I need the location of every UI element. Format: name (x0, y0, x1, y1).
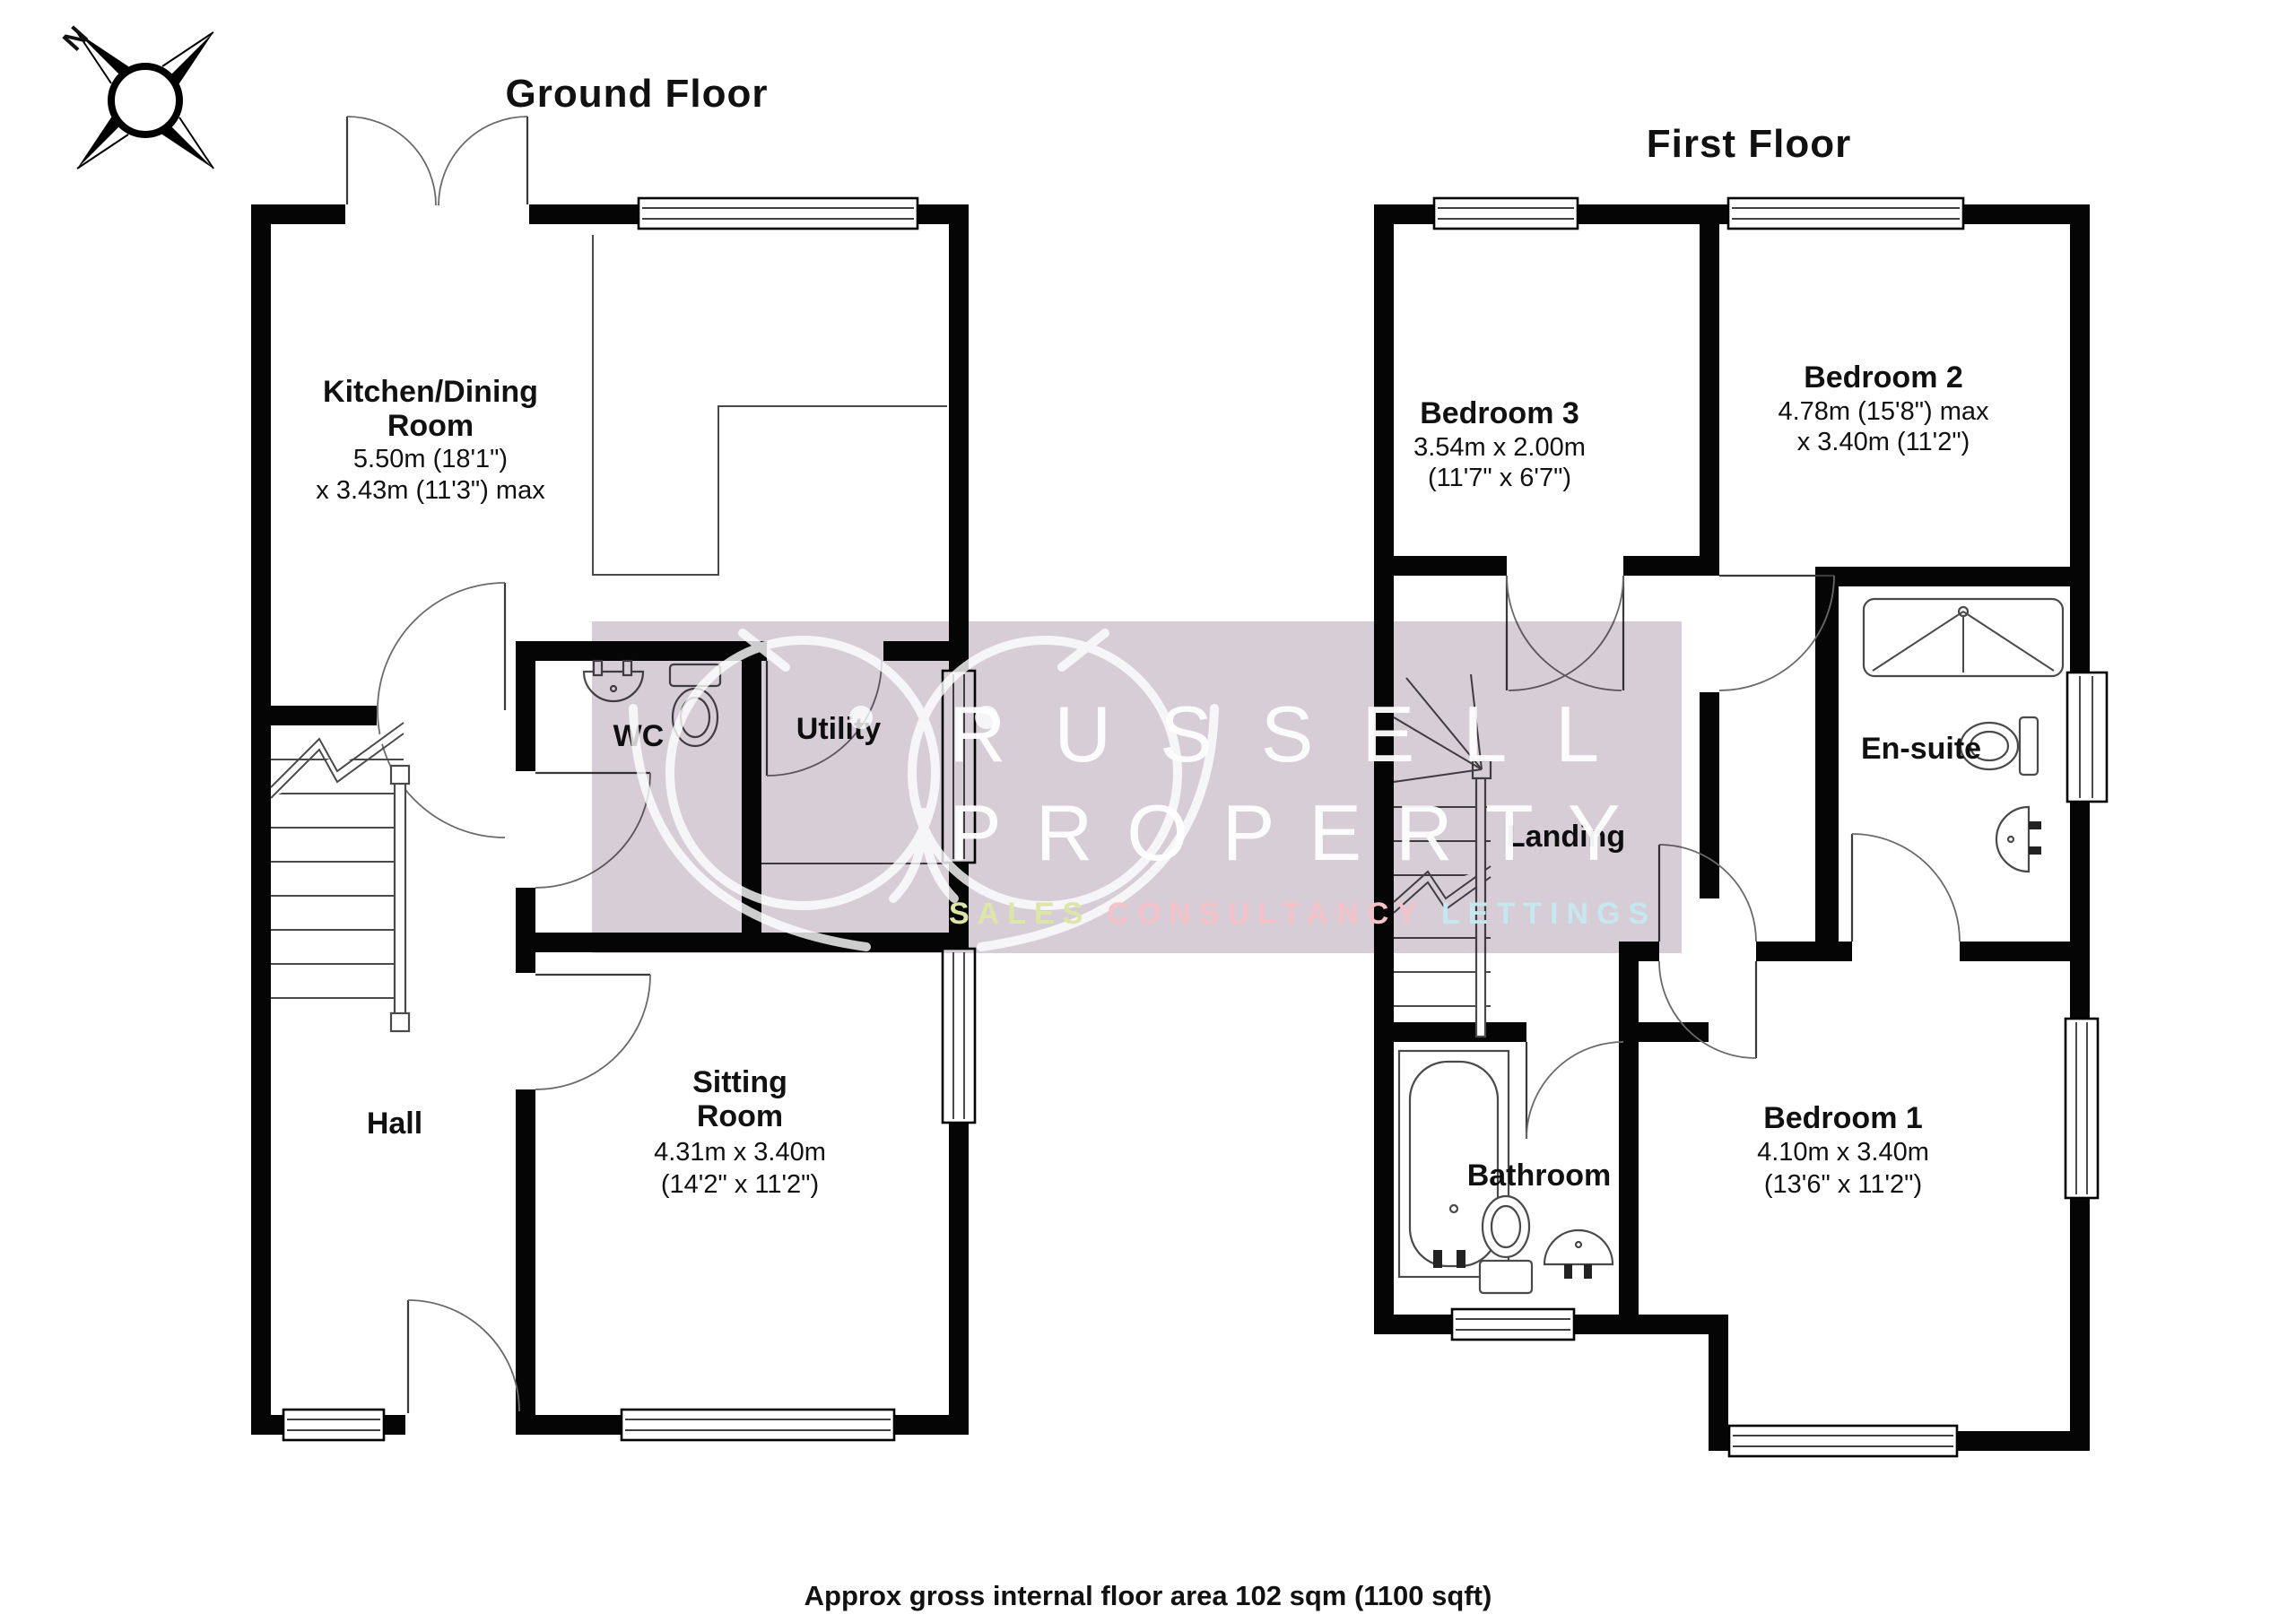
room-label-bathroom: Bathroom (1467, 1159, 1612, 1193)
window (1452, 1309, 1574, 1340)
room-label-bedroom1: Bedroom 1 (1763, 1101, 1923, 1135)
window (2066, 1019, 2098, 1198)
room-dims-sitting-2: (14'2" x 11'2") (661, 1170, 819, 1199)
compass-rose-icon: N (57, 20, 213, 169)
door-arc (1852, 834, 1960, 942)
room-dims-bedroom3-1: 3.54m x 2.00m (1413, 433, 1586, 462)
room-dims-sitting-1: 4.31m x 3.40m (654, 1138, 826, 1167)
room-label-kitchen-2: Room (387, 409, 474, 443)
window (1729, 1426, 1957, 1456)
door-arc (1526, 1042, 1623, 1139)
toilet-icon (1480, 1196, 1532, 1293)
kitchen-counter (593, 235, 947, 575)
watermark-line1: RUSSELL (949, 689, 1675, 787)
room-label-hall: Hall (367, 1107, 422, 1141)
room-dims-bedroom2-2: x 3.40m (11'2") (1797, 428, 1970, 456)
room-dims-kitchen-2: x 3.43m (11'3") max (316, 476, 545, 505)
door-arc (535, 975, 650, 1089)
watermark-text: RUSSELL PROPERTY SALESCONSULTANCYLETTING… (949, 689, 1675, 932)
window (943, 949, 975, 1123)
french-door (347, 117, 527, 205)
room-dims-bedroom2-1: 4.78m (15'8") max (1778, 397, 1989, 426)
room-dims-kitchen-1: 5.50m (18'1") (353, 445, 508, 473)
window (622, 1410, 894, 1440)
window (283, 1410, 384, 1440)
window (1728, 198, 1963, 229)
watermark-consultancy-label: CONSULTANCY (1107, 897, 1425, 931)
room-label-sitting-2: Room (697, 1099, 783, 1133)
shower-icon (1864, 599, 2063, 676)
room-label-sitting: Sitting (692, 1065, 787, 1099)
room-dims-bedroom1-1: 4.10m x 3.40m (1757, 1138, 1929, 1167)
floor-area-note: Approx gross internal floor area 102 sqm… (0, 1580, 2296, 1612)
watermark-lettings-label: LETTINGS (1441, 897, 1657, 931)
sink-icon (1996, 807, 2041, 872)
front-door-arc (408, 1300, 519, 1413)
watermark-line2: PROPERTY (949, 787, 1675, 886)
watermark-sales-label: SALES (949, 897, 1091, 931)
room-dims-bedroom1-2: (13'6" x 11'2") (1764, 1170, 1922, 1199)
room-label-kitchen: Kitchen/Dining (323, 375, 538, 409)
sink-icon (1544, 1230, 1613, 1279)
room-label-bedroom3: Bedroom 3 (1420, 396, 1579, 430)
window (639, 198, 918, 229)
floorplan-page: Ground Floor First Floor N (0, 0, 2296, 1623)
watermark-line3: SALESCONSULTANCYLETTINGS (949, 897, 1675, 932)
compass-north-label: N (57, 20, 94, 56)
window (1434, 198, 1578, 229)
room-label-ensuite: En-suite (1861, 732, 1981, 766)
room-label-bedroom2: Bedroom 2 (1804, 360, 1963, 395)
window (2067, 673, 2107, 802)
room-dims-bedroom3-2: (11'7" x 6'7") (1428, 464, 1571, 492)
staircase (271, 723, 409, 1031)
